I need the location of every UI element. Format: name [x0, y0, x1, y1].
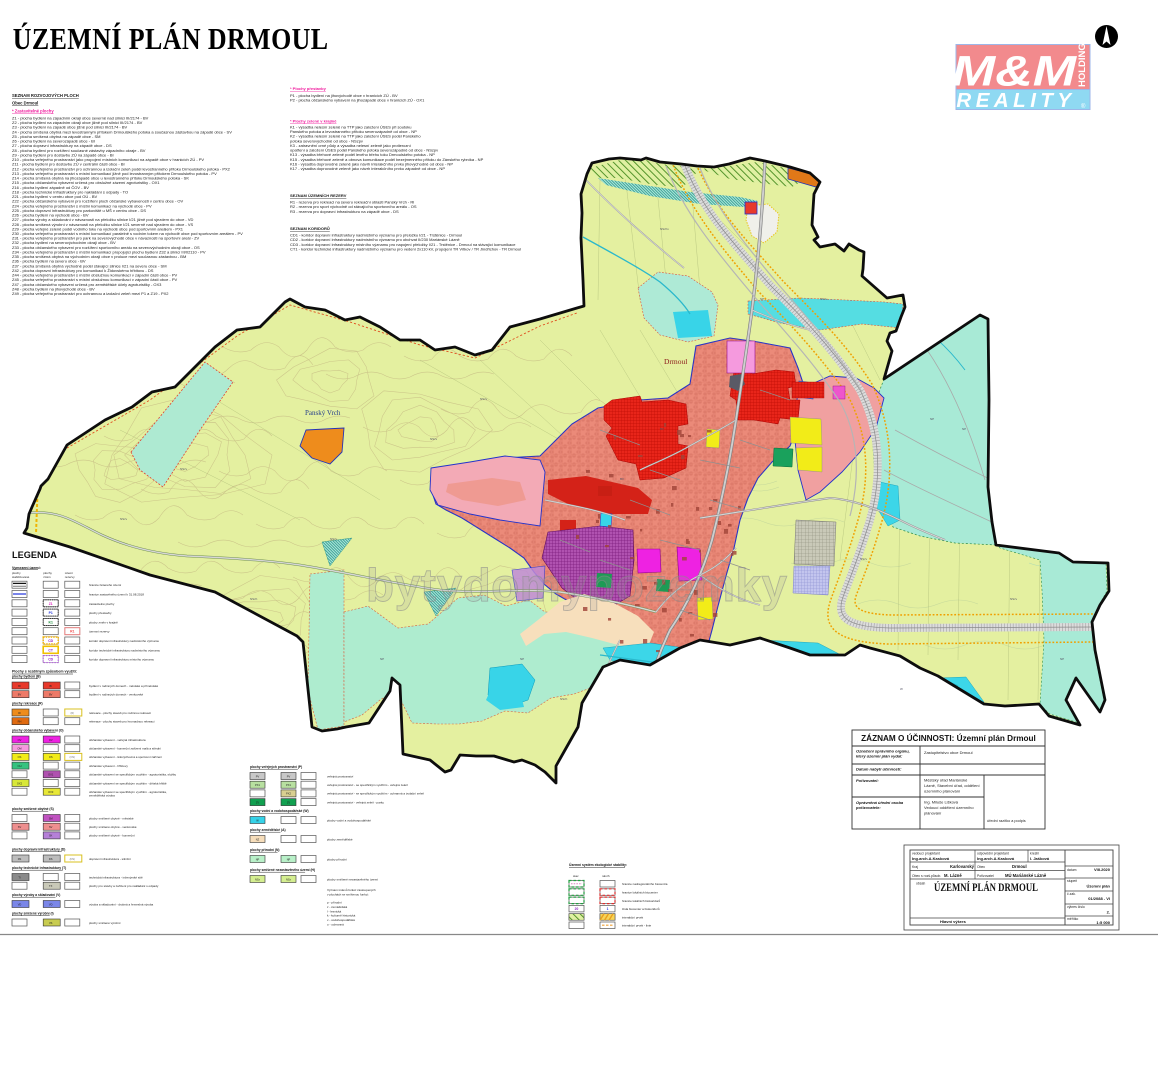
svg-text:OV: OV: [49, 738, 53, 742]
svg-text:veřejná prostranství - se spec: veřejná prostranství - se specifickým vy…: [327, 783, 408, 787]
svg-text:VD: VD: [18, 902, 22, 906]
svg-text:Plochy s rozdílným způsobem vy: Plochy s rozdílným způsobem využití:: [12, 670, 77, 674]
svg-text:plánování: plánování: [924, 811, 942, 816]
svg-text:čísla biocenter a biokoridorů: čísla biocenter a biokoridorů: [622, 907, 660, 911]
svg-text:BI: BI: [49, 684, 52, 688]
svg-text:NP: NP: [962, 427, 966, 431]
svg-text:Karlovarský: Karlovarský: [950, 864, 975, 869]
svg-text:datum: datum: [1067, 868, 1077, 872]
svg-text:PV: PV: [256, 774, 260, 778]
svg-text:Územní systém ekologické stabi: Územní systém ekologické stability:: [569, 862, 627, 867]
svg-text:Ing. Miluše Lišková: Ing. Miluše Lišková: [924, 800, 959, 805]
svg-text:Pořizovatel:: Pořizovatel:: [856, 778, 879, 783]
svg-text:ZV: ZV: [256, 800, 260, 804]
svg-text:plochy veřejných prostranství: plochy veřejných prostranství (P): [250, 765, 302, 769]
svg-text:* Plochy přestavby: * Plochy přestavby: [290, 86, 327, 91]
svg-text:M. Lázně: M. Lázně: [944, 873, 962, 878]
svg-text:rekreace - plochy staveb pro h: rekreace - plochy staveb pro hromadnou r…: [89, 720, 155, 724]
svg-text:P1: P1: [49, 611, 53, 615]
svg-text:NP: NP: [256, 857, 260, 861]
svg-text:plochy smíšené nezastavěného ú: plochy smíšené nezastavěného území (H): [250, 868, 315, 872]
svg-text:R3 - rezerva pro dopravní infr: R3 - rezerva pro dopravní infrastrukturu…: [290, 209, 399, 214]
svg-text:PX1: PX1: [286, 783, 291, 787]
svg-text:BV: BV: [700, 597, 704, 601]
svg-text:plochy smíšené obytné (S): plochy smíšené obytné (S): [12, 807, 54, 811]
svg-text:RI: RI: [18, 711, 21, 715]
svg-text:NSzh: NSzh: [560, 697, 568, 701]
svg-text:Panský Vrch: Panský Vrch: [305, 409, 341, 417]
svg-text:veřejná prostranství - se spec: veřejná prostranství - se specifickým vy…: [327, 792, 424, 796]
svg-text:NSzhv: NSzhv: [660, 227, 669, 231]
svg-text:Hlavní výkres: Hlavní výkres: [940, 919, 967, 924]
svg-text:bydlení v rodinných domech - v: bydlení v rodinných domech - venkovské: [89, 693, 144, 697]
svg-text:plochy pro stavby a zařízení p: plochy pro stavby a zařízení pro nakládá…: [89, 884, 159, 888]
svg-text:OX3: OX3: [48, 790, 54, 794]
svg-text:OX1: OX1: [48, 773, 54, 777]
svg-text:NP: NP: [287, 857, 291, 861]
svg-text:NSzv: NSzv: [430, 437, 438, 441]
svg-text:NSzv: NSzv: [1010, 597, 1018, 601]
svg-text:OM: OM: [17, 747, 21, 751]
svg-text:veřejná prostranství - veřejná: veřejná prostranství - veřejná zeleň - p…: [327, 800, 384, 804]
svg-text:plochy přírodní (N): plochy přírodní (N): [250, 848, 280, 852]
svg-text:Z1: Z1: [49, 602, 53, 606]
svg-text:plochy dopravní infrastruktury: plochy dopravní infrastruktury (D): [12, 848, 65, 852]
svg-text:plochy zemědělské (A): plochy zemědělské (A): [250, 828, 286, 832]
svg-text:OS: OS: [49, 755, 53, 759]
svg-text:stabilizované: stabilizované: [12, 575, 30, 579]
svg-text:obsah: obsah: [916, 882, 925, 886]
svg-text:* Zastavitelné plochy: * Zastavitelné plochy: [12, 109, 54, 114]
svg-text:NZ: NZ: [256, 837, 260, 841]
svg-text:interakční prvek - linie: interakční prvek - linie: [622, 924, 652, 928]
svg-text:plochy smíšené výrobní: plochy smíšené výrobní: [89, 921, 121, 925]
svg-text:NSzv: NSzv: [180, 467, 188, 471]
svg-text:ÚZEMNÍ PLÁN DRMOUL: ÚZEMNÍ PLÁN DRMOUL: [934, 880, 1038, 894]
svg-text:občanské vybavení se specifick: občanské vybavení se specifickým využití…: [89, 773, 177, 777]
svg-text:koridor technické infrastruktu: koridor technické infrastruktury nadmíst…: [89, 648, 160, 652]
svg-text:Pořizovatel: Pořizovatel: [977, 874, 994, 878]
svg-text:Obec s rozš.působ.: Obec s rozš.působ.: [912, 874, 941, 878]
svg-text:SK: SK: [49, 834, 53, 838]
svg-text:hranice nadregionálního biocen: hranice nadregionálního biocentra: [622, 882, 668, 886]
svg-text:plochy rekreace (R): plochy rekreace (R): [12, 702, 43, 706]
svg-text:Územní plán: Územní plán: [1086, 884, 1110, 889]
svg-text:vedoucí projektant: vedoucí projektant: [912, 852, 940, 856]
svg-text:o - ochranná: o - ochranná: [327, 923, 344, 927]
svg-text:PV: PV: [287, 774, 291, 778]
svg-text:Drmoul: Drmoul: [1012, 864, 1027, 869]
svg-text:návrh: návrh: [602, 874, 610, 878]
svg-text:p - přírodní: p - přírodní: [327, 901, 342, 905]
svg-text:v - vodohospodářská: v - vodohospodářská: [327, 918, 355, 922]
svg-text:CD: CD: [48, 658, 53, 662]
svg-text:OS: OS: [18, 755, 22, 759]
svg-text:Obec: Obec: [977, 865, 985, 869]
svg-text:v plochách se smíšenou funkcí:: v plochách se smíšenou funkcí:: [327, 893, 369, 897]
svg-text:CD: CD: [48, 639, 53, 643]
svg-text:P2 - plocha občanského vybaven: P2 - plocha občanského vybavení na jihoz…: [290, 98, 425, 103]
svg-text:hranice řešeného území: hranice řešeného území: [89, 583, 121, 587]
svg-text:BV: BV: [660, 427, 664, 431]
svg-text:plochy výroby a skladování (V): plochy výroby a skladování (V): [12, 893, 60, 897]
svg-text:2.: 2.: [1107, 910, 1110, 915]
svg-text:koridor dopravní infrastruktur: koridor dopravní infrastruktury nadmístn…: [89, 639, 159, 643]
svg-text:občanské vybavení - hřbitovy: občanské vybavení - hřbitovy: [89, 764, 128, 768]
svg-text:interakční prvek: interakční prvek: [622, 915, 644, 919]
svg-text:1:5 000: 1:5 000: [1096, 920, 1110, 925]
svg-text:Drmoul: Drmoul: [664, 357, 687, 366]
svg-text:BV: BV: [620, 477, 624, 481]
svg-text:Kraj: Kraj: [912, 865, 918, 869]
svg-text:plochy bydlení (B): plochy bydlení (B): [12, 675, 41, 679]
svg-text:veřejná prostranství: veřejná prostranství: [327, 774, 354, 778]
svg-text:rezervy: rezervy: [65, 575, 75, 579]
svg-text:plochy přírodní: plochy přírodní: [327, 857, 347, 861]
svg-text:občanské vybavení - tělovýchov: občanské vybavení - tělovýchovná a sport…: [89, 755, 162, 759]
svg-text:bytydomypozemky: bytydomypozemky: [366, 559, 788, 611]
svg-text:Lázně, Stavební úřad, oddělení: Lázně, Stavební úřad, oddělení: [924, 783, 980, 788]
svg-text:NP: NP: [520, 657, 524, 661]
svg-text:HOLDING: HOLDING: [1077, 43, 1088, 87]
svg-text:(R): (R): [70, 711, 74, 715]
svg-text:TX: TX: [49, 884, 53, 888]
svg-text:NP: NP: [930, 417, 934, 421]
svg-text:Ing.arch.A.Kasková: Ing.arch.A.Kasková: [977, 856, 1015, 861]
svg-text:občanské vybavení - komerční z: občanské vybavení - komerční zařízení ma…: [89, 747, 161, 751]
svg-text:technická infrastruktura - inž: technická infrastruktura - inženýrské sí…: [89, 875, 143, 879]
svg-text:občanské vybavení - veřejná in: občanské vybavení - veřejná infrastruktu…: [89, 738, 146, 742]
svg-text:BI: BI: [18, 684, 21, 688]
svg-text:VIII.2020: VIII.2020: [1094, 867, 1111, 872]
svg-text:plochy vodní a vodohospodářské: plochy vodní a vodohospodářské: [327, 818, 371, 822]
svg-text:plochy vodní a vodohospodářské: plochy vodní a vodohospodářské (W): [250, 809, 309, 813]
svg-text:zastavitelné plochy: zastavitelné plochy: [89, 602, 115, 606]
svg-text:SEZNAM ÚZEMNÍCH REZERV: SEZNAM ÚZEMNÍCH REZERV: [290, 193, 347, 198]
svg-text:REALITY: REALITY: [956, 89, 1075, 112]
svg-text:z - zemědělská: z - zemědělská: [327, 905, 348, 909]
svg-text:NP: NP: [760, 297, 764, 301]
svg-text:výroba a skladování - drobná a: výroba a skladování - drobná a řemeslná …: [89, 902, 154, 906]
svg-text:(OS): (OS): [70, 755, 76, 759]
svg-text:NP: NP: [380, 657, 384, 661]
svg-text:zemědělská výroba: zemědělská výroba: [89, 793, 115, 797]
svg-text:1: 1: [607, 907, 609, 911]
svg-text:OH: OH: [18, 764, 22, 768]
svg-text:plochy změn v krajině: plochy změn v krajině: [89, 620, 118, 624]
svg-text:plochy technické infrastruktur: plochy technické infrastruktury (T): [12, 866, 66, 870]
svg-text:NSzv: NSzv: [480, 397, 488, 401]
svg-text:DS: DS: [49, 857, 53, 861]
svg-text:RH: RH: [18, 720, 22, 724]
svg-text:BV: BV: [18, 693, 22, 697]
svg-text:l - lesnická: l - lesnická: [327, 909, 342, 913]
svg-text:ÚZEMNÍ PLÁN DRMOUL: ÚZEMNÍ PLÁN DRMOUL: [13, 23, 329, 56]
svg-text:01/2088 - VI: 01/2088 - VI: [1088, 896, 1110, 901]
svg-text:W: W: [900, 687, 903, 691]
svg-text:VS: VS: [49, 921, 53, 925]
svg-text:(DS): (DS): [70, 857, 75, 861]
svg-text:* Plochy zeleně v krajině: * Plochy zeleně v krajině: [290, 119, 337, 124]
svg-text:plochy smíšené obytné - městsk: plochy smíšené obytné - městské: [89, 816, 134, 820]
svg-text:pořizovatele:: pořizovatele:: [855, 805, 881, 810]
svg-text:NSx: NSx: [255, 877, 261, 881]
svg-text:I. Jašková: I. Jašková: [1030, 856, 1050, 861]
svg-text:20: 20: [575, 907, 579, 911]
svg-text:Význam indexů funkcí zastoupen: Význam indexů funkcí zastoupených: [327, 888, 376, 892]
svg-text:ZV: ZV: [287, 800, 291, 804]
svg-text:územní rezervy: územní rezervy: [89, 630, 110, 634]
svg-text:CT1 - koridor technické infras: CT1 - koridor technické infrastruktury n…: [290, 246, 521, 251]
svg-text:NP: NP: [1060, 657, 1064, 661]
svg-text:plochy přestavby: plochy přestavby: [89, 611, 112, 615]
svg-text:plochy smíšené obytné - venkov: plochy smíšené obytné - venkovské: [89, 825, 137, 829]
svg-text:K17 - výsadba doprovodné zelen: K17 - výsadba doprovodné zeleně jako náv…: [290, 166, 445, 171]
svg-text:MÚ Mariánské Lázně: MÚ Mariánské Lázně: [1005, 873, 1047, 878]
svg-text:k - kulturně historická: k - kulturně historická: [327, 914, 356, 918]
svg-text:stupeň: stupeň: [1067, 879, 1077, 883]
svg-text:hranice lokálních biokoridorů: hranice lokálních biokoridorů: [622, 899, 661, 903]
svg-text:SV: SV: [18, 825, 22, 829]
svg-text:SM: SM: [49, 816, 53, 820]
svg-text:č.zak.: č.zak.: [1067, 892, 1076, 896]
svg-text:občanské vybavení se specifick: občanské vybavení se specifickým využití…: [89, 781, 167, 785]
svg-text:ZÁZNAM O ÚČINNOSTI: Územní plá: ZÁZNAM O ÚČINNOSTI: Územní plán Drmoul: [861, 732, 1036, 743]
svg-text:Z49 - plocha veřejného prostra: Z49 - plocha veřejného prostranství pro …: [12, 291, 169, 296]
svg-text:NSx: NSx: [286, 877, 292, 881]
svg-text:plochy smíšené výrobní (I): plochy smíšené výrobní (I): [12, 912, 54, 916]
svg-text:NSzh: NSzh: [250, 597, 258, 601]
svg-text:plochy občanského vybavení (O): plochy občanského vybavení (O): [12, 729, 63, 733]
svg-text:NSzv: NSzv: [860, 557, 868, 561]
svg-text:Zastupitelstvo obce Drmoul: Zastupitelstvo obce Drmoul: [924, 750, 973, 755]
svg-text:OX2: OX2: [17, 781, 23, 785]
svg-text:PX2: PX2: [286, 792, 291, 796]
svg-text:plochy zemědělské: plochy zemědělské: [327, 837, 353, 841]
svg-text:OV: OV: [18, 738, 22, 742]
svg-text:Ing.arch.A.Kasková: Ing.arch.A.Kasková: [912, 856, 950, 861]
svg-text:NSzv: NSzv: [120, 517, 128, 521]
svg-text:hranice lokálních biocenter: hranice lokálních biocenter: [622, 891, 658, 895]
svg-text:úřední razítko a podpis: úřední razítko a podpis: [987, 819, 1026, 823]
svg-text:VD: VD: [49, 902, 53, 906]
svg-text:NSzv: NSzv: [820, 297, 828, 301]
svg-text:měřítko: měřítko: [1067, 917, 1078, 921]
svg-text:rekreace - plochy staveb pro r: rekreace - plochy staveb pro rodinnou re…: [89, 711, 151, 715]
svg-text:územního plánování: územního plánování: [924, 789, 961, 794]
svg-text:odpovědní projektant: odpovědní projektant: [977, 852, 1009, 856]
svg-text:LEGENDA: LEGENDA: [12, 550, 57, 560]
svg-text:K1: K1: [49, 620, 53, 624]
svg-text:hranice zastavěného území k 31: hranice zastavěného území k 31.08.2018: [89, 593, 144, 597]
svg-text:který územní plán vydal:: který územní plán vydal:: [856, 754, 903, 759]
svg-text:změn: změn: [43, 575, 51, 579]
svg-text:plochy smíšené obytné - komerč: plochy smíšené obytné - komerční: [89, 834, 135, 838]
svg-text:Obec Drmoul: Obec Drmoul: [12, 101, 38, 106]
svg-text:Městský úřad Mariánské: Městský úřad Mariánské: [924, 778, 968, 783]
svg-text:PX1: PX1: [255, 783, 260, 787]
svg-text:R1: R1: [70, 630, 74, 634]
svg-text:DS: DS: [18, 857, 22, 861]
svg-text:stav: stav: [573, 874, 579, 878]
svg-text:dopravní infrastruktura - siln: dopravní infrastruktura - silniční: [89, 857, 131, 861]
svg-text:Vedoucí oddělení územního: Vedoucí oddělení územního: [924, 805, 974, 810]
svg-text:bydlení v rodinných domech - m: bydlení v rodinných domech - městské a p…: [89, 684, 159, 688]
svg-text:kreslil: kreslil: [1030, 852, 1039, 856]
svg-text:Datum nabytí účinnosti:: Datum nabytí účinnosti:: [856, 767, 902, 772]
svg-text:SEZNAM KORIDORŮ: SEZNAM KORIDORŮ: [290, 226, 330, 231]
svg-text:BV: BV: [49, 693, 53, 697]
svg-text:®: ®: [1081, 103, 1086, 110]
svg-text:SV: SV: [49, 825, 53, 829]
svg-text:koridor dopravní infrastruktur: koridor dopravní infrastruktury místního…: [89, 658, 154, 662]
svg-text:plochy smíšené nezastavěného ú: plochy smíšené nezastavěného území: [327, 877, 378, 881]
svg-text:NSzv: NSzv: [330, 537, 338, 541]
svg-text:SEZNAM ROZVOJOVÝCH PLOCH: SEZNAM ROZVOJOVÝCH PLOCH: [12, 93, 79, 98]
svg-text:TI: TI: [18, 875, 21, 879]
svg-text:výkres číslo: výkres číslo: [1067, 905, 1085, 909]
